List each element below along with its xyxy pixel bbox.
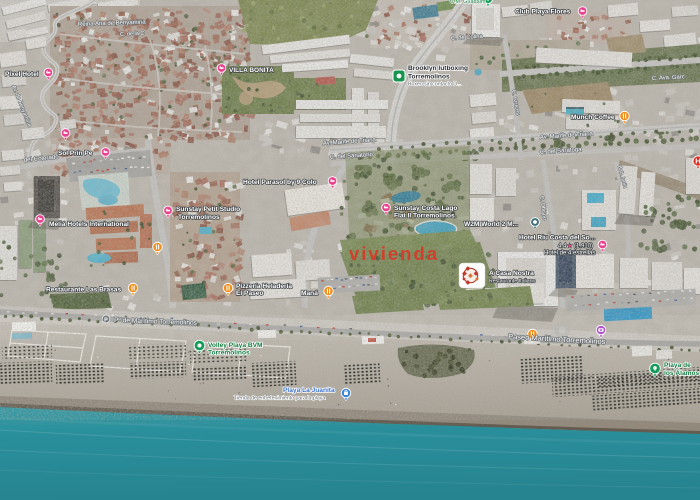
svg-text:Torremolinos: Torremolinos: [408, 74, 450, 81]
svg-text:(1.910): (1.910): [574, 244, 593, 250]
svg-text:H: H: [695, 157, 700, 166]
svg-text:Maná: Maná: [301, 290, 318, 297]
svg-text:Boxeo sin contacto D...: Boxeo sin contacto D...: [408, 82, 461, 88]
svg-text:Hotel Parasol by 9 Colo: Hotel Parasol by 9 Colo: [243, 179, 317, 186]
svg-text:Torremolinos: Torremolinos: [178, 214, 220, 221]
svg-text:El Paseo: El Paseo: [236, 290, 264, 297]
svg-text:Playa de: Playa de: [664, 362, 691, 369]
svg-text:P: P: [104, 318, 108, 324]
svg-text:Tienda de entretenimiento para: Tienda de entretenimiento para la playa: [234, 396, 325, 402]
svg-text:W2M World 2 M...: W2M World 2 M...: [464, 221, 518, 228]
svg-text:Restaurante Las Brasas: Restaurante Las Brasas: [46, 287, 121, 294]
svg-text:A Casa Nostra: A Casa Nostra: [489, 270, 534, 277]
svg-text:Sunstay Costa Lago: Sunstay Costa Lago: [394, 205, 457, 212]
svg-text:Hotel de 4 estrellas: Hotel de 4 estrellas: [544, 251, 595, 257]
svg-text:Pizzería Heladería: Pizzería Heladería: [236, 283, 292, 290]
svg-text:Pixel Hotel: Pixel Hotel: [5, 71, 39, 78]
svg-text:Brooklyn Iutboxing: Brooklyn Iutboxing: [408, 65, 468, 72]
svg-text:Sunstay Petit Studio: Sunstay Petit Studio: [176, 206, 240, 213]
svg-text:Playa La Juanita: Playa La Juanita: [283, 387, 335, 394]
svg-text:C. de la C: C. de la C: [120, 31, 145, 38]
svg-text:Munch Coffee: Munch Coffee: [571, 114, 615, 121]
svg-text:los Álamos: los Álamos: [664, 368, 700, 377]
svg-text:VILLA BONITA: VILLA BONITA: [229, 67, 274, 74]
svg-text:Club Playa Flores: Club Playa Flores: [515, 9, 571, 16]
svg-text:★: ★: [567, 243, 572, 250]
svg-text:Volley Playa BVM: Volley Playa BVM: [208, 342, 263, 349]
svg-text:Flat II Torremolinos: Flat II Torremolinos: [394, 213, 455, 220]
svg-text:Meliá Hotels International: Meliá Hotels International: [49, 221, 129, 228]
svg-text:vivienda: vivienda: [349, 243, 439, 264]
svg-text:Sol Prín Pe: Sol Prín Pe: [58, 150, 93, 157]
svg-text:Hotel Riu Costa del So...: Hotel Riu Costa del So...: [519, 235, 595, 242]
svg-text:C.M. Guadalm: C.M. Guadalm: [450, 0, 486, 5]
svg-text:Torremolinos: Torremolinos: [208, 350, 250, 357]
svg-text:4.4: 4.4: [558, 244, 567, 250]
svg-text:Restaurante Italiano: Restaurante Italiano: [489, 279, 536, 285]
